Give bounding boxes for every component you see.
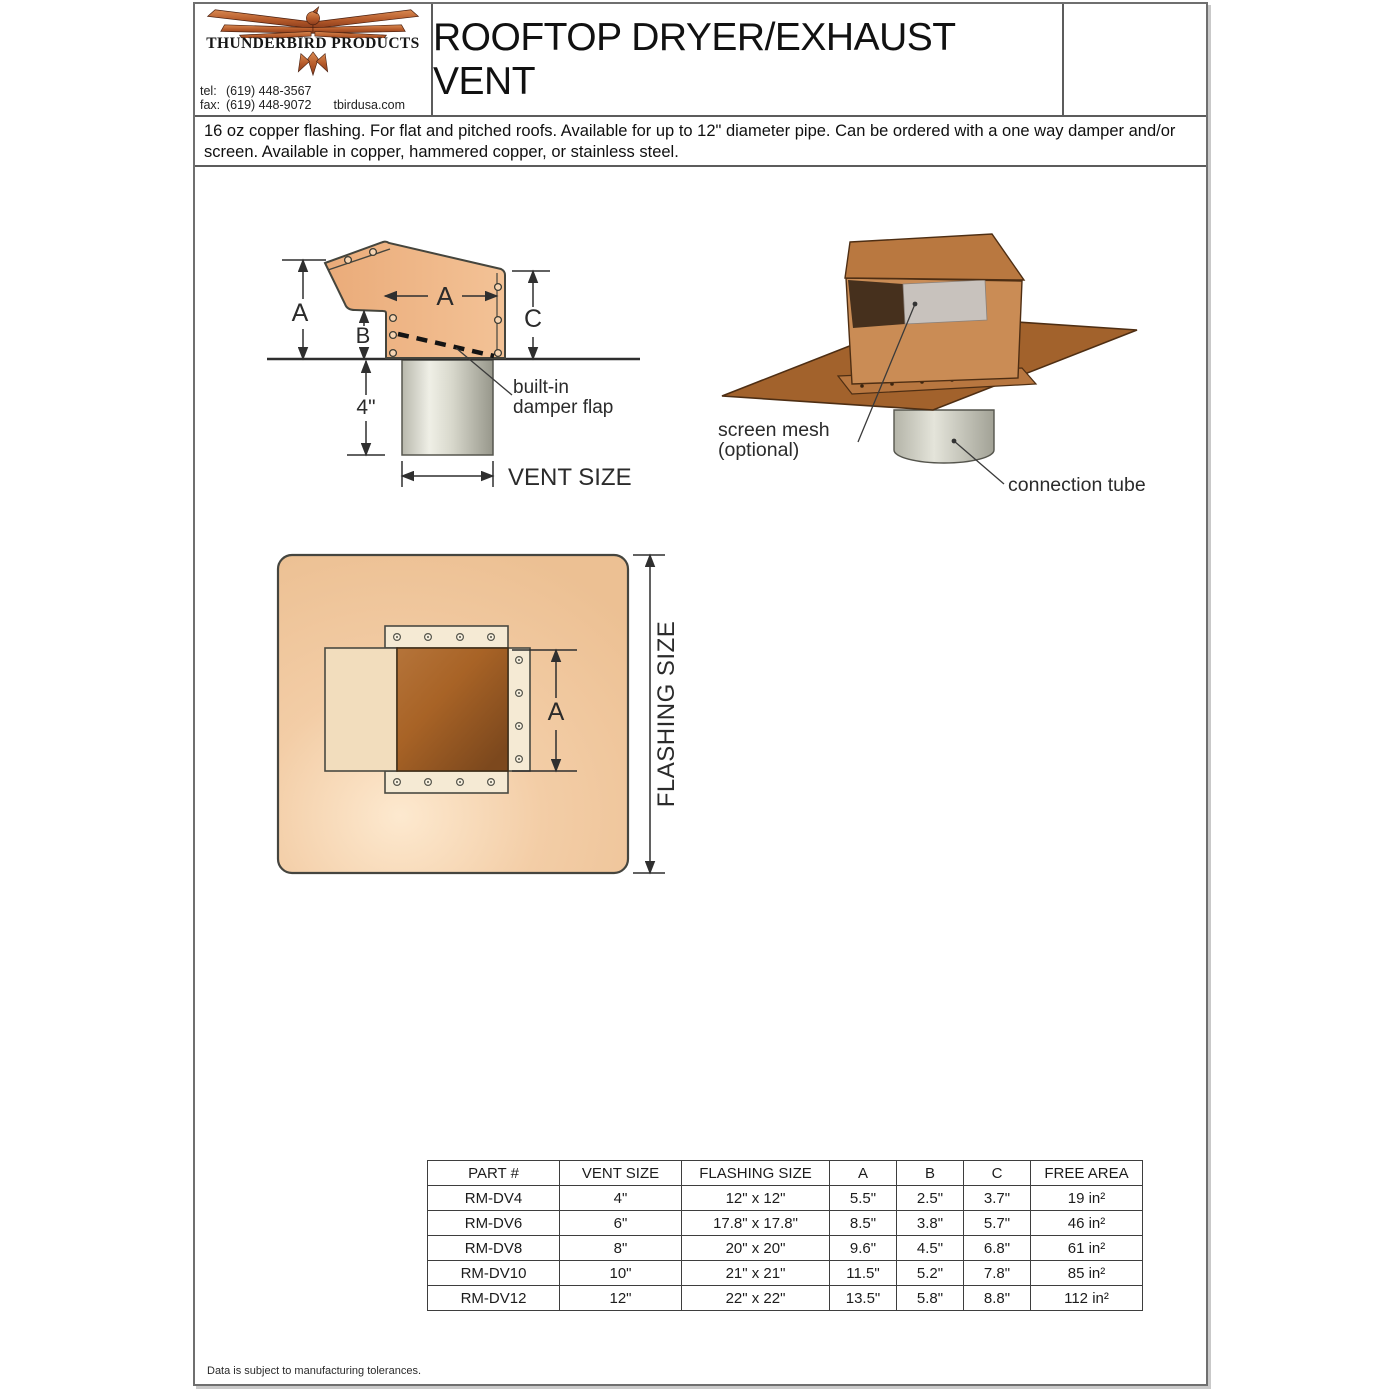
vent-hood-shape <box>325 242 505 358</box>
table-cell: 17.8" x 17.8" <box>682 1211 830 1236</box>
vent-size-label: VENT SIZE <box>508 464 632 491</box>
table-cell: RM-DV6 <box>428 1211 560 1236</box>
table-cell: 7.8" <box>964 1261 1031 1286</box>
table-header-row: PART # VENT SIZE FLASHING SIZE A B C FRE… <box>428 1161 1143 1186</box>
table-cell: 5.8" <box>897 1286 964 1311</box>
side-view-diagram: A A B C <box>262 225 682 525</box>
damper-label-line2: damper flap <box>513 397 613 418</box>
flashing-size-label: FLASHING SIZE <box>653 621 680 808</box>
table-cell: 20" x 20" <box>682 1236 830 1261</box>
spec-table: PART # VENT SIZE FLASHING SIZE A B C FRE… <box>427 1160 1143 1311</box>
table-cell: 2.5" <box>897 1186 964 1211</box>
table-cell: 6" <box>560 1211 682 1236</box>
header-empty-cell <box>1062 4 1206 115</box>
col-header-flashing-size: FLASHING SIZE <box>682 1161 830 1186</box>
iso-view-diagram: screen mesh (optional) connection tube <box>702 220 1192 520</box>
table-row: RM-DV10 10" 21" x 21" 11.5" 5.2" 7.8" 85… <box>428 1261 1143 1286</box>
dim-tube-length-label: 4" <box>356 396 375 419</box>
dim-c-label: C <box>524 305 542 333</box>
dim-a-width-label: A <box>436 281 454 311</box>
dim-b-label: B <box>356 323 371 348</box>
table-row: RM-DV6 6" 17.8" x 17.8" 8.5" 3.8" 5.7" 4… <box>428 1211 1143 1236</box>
table-cell: 12" <box>560 1286 682 1311</box>
dim-vent-size <box>402 461 493 487</box>
vent-opening-dark <box>848 280 905 328</box>
screen-mesh-label-line2: (optional) <box>718 439 799 461</box>
table-cell: RM-DV10 <box>428 1261 560 1286</box>
table-cell: 112 in² <box>1031 1286 1143 1311</box>
table-cell: RM-DV8 <box>428 1236 560 1261</box>
table-cell: 4.5" <box>897 1236 964 1261</box>
thunderbird-wings-icon <box>198 6 428 38</box>
table-cell: 3.8" <box>897 1211 964 1236</box>
fax-label: fax: <box>200 98 226 112</box>
table-cell: 22" x 22" <box>682 1286 830 1311</box>
table-cell: 11.5" <box>830 1261 897 1286</box>
table-row: RM-DV4 4" 12" x 12" 5.5" 2.5" 3.7" 19 in… <box>428 1186 1143 1211</box>
col-header-free-area: FREE AREA <box>1031 1161 1143 1186</box>
table-row: RM-DV8 8" 20" x 20" 9.6" 4.5" 6.8" 61 in… <box>428 1236 1143 1261</box>
col-header-b: B <box>897 1161 964 1186</box>
vent-opening-top <box>397 648 508 771</box>
connection-tube-iso <box>894 410 994 463</box>
company-name: THUNDERBIRD PRODUCTS <box>206 36 419 51</box>
table-cell: 46 in² <box>1031 1211 1143 1236</box>
table-cell: 4" <box>560 1186 682 1211</box>
contact-info: tel: (619) 448-3567 fax: (619) 448-9072 … <box>198 84 428 112</box>
table-cell: 5.7" <box>964 1211 1031 1236</box>
connection-tube-leader-dot <box>952 439 957 444</box>
table-cell: 6.8" <box>964 1236 1031 1261</box>
dim-a-top-label: A <box>548 698 565 726</box>
table-cell: RM-DV4 <box>428 1186 560 1211</box>
main-content: A A B C <box>195 167 1206 1382</box>
table-cell: 21" x 21" <box>682 1261 830 1286</box>
table-cell: 3.7" <box>964 1186 1031 1211</box>
connection-tube-label: connection tube <box>1008 474 1146 496</box>
screen-mesh-leader-dot <box>913 302 918 307</box>
tel-label: tel: <box>200 84 226 98</box>
table-cell: 12" x 12" <box>682 1186 830 1211</box>
table-cell: 61 in² <box>1031 1236 1143 1261</box>
table-cell: 5.2" <box>897 1261 964 1286</box>
top-view-diagram: A FLASHING SIZE <box>267 540 687 890</box>
col-header-c: C <box>964 1161 1031 1186</box>
title-cell: ROOFTOP DRYER/EXHAUST VENT <box>433 4 1062 115</box>
col-header-vent-size: VENT SIZE <box>560 1161 682 1186</box>
header: THUNDERBIRD PRODUCTS tel: (619) 448-3567… <box>195 4 1206 117</box>
table-cell: 85 in² <box>1031 1261 1143 1286</box>
product-description: 16 oz copper flashing. For flat and pitc… <box>195 117 1206 167</box>
tolerance-note: Data is subject to manufacturing toleran… <box>207 1365 421 1377</box>
table-cell: 10" <box>560 1261 682 1286</box>
table-cell: 9.6" <box>830 1236 897 1261</box>
table-cell: 8.5" <box>830 1211 897 1236</box>
dim-a-left-label: A <box>292 299 309 327</box>
tel-number: (619) 448-3567 <box>226 84 311 98</box>
website-text: tbirdusa.com <box>333 98 405 112</box>
damper-label-line1: built-in <box>513 377 569 398</box>
table-cell: 13.5" <box>830 1286 897 1311</box>
connection-tube-side <box>402 360 493 455</box>
table-cell: 5.5" <box>830 1186 897 1211</box>
table-row: RM-DV12 12" 22" x 22" 13.5" 5.8" 8.8" 11… <box>428 1286 1143 1311</box>
spec-sheet-page: THUNDERBIRD PRODUCTS tel: (619) 448-3567… <box>0 0 1400 1400</box>
col-header-part: PART # <box>428 1161 560 1186</box>
vent-box-top-face <box>845 234 1024 280</box>
document-frame: THUNDERBIRD PRODUCTS tel: (619) 448-3567… <box>193 2 1208 1386</box>
col-header-a: A <box>830 1161 897 1186</box>
logo-block: THUNDERBIRD PRODUCTS tel: (619) 448-3567… <box>195 4 433 115</box>
screen-mesh-label-line1: screen mesh <box>718 419 830 441</box>
table-cell: 8" <box>560 1236 682 1261</box>
table-cell: 19 in² <box>1031 1186 1143 1211</box>
table-cell: RM-DV12 <box>428 1286 560 1311</box>
thunderbird-tail-icon <box>285 51 341 77</box>
fax-number: (619) 448-9072 <box>226 98 311 112</box>
page-title: ROOFTOP DRYER/EXHAUST VENT <box>433 16 1062 104</box>
table-cell: 8.8" <box>964 1286 1031 1311</box>
